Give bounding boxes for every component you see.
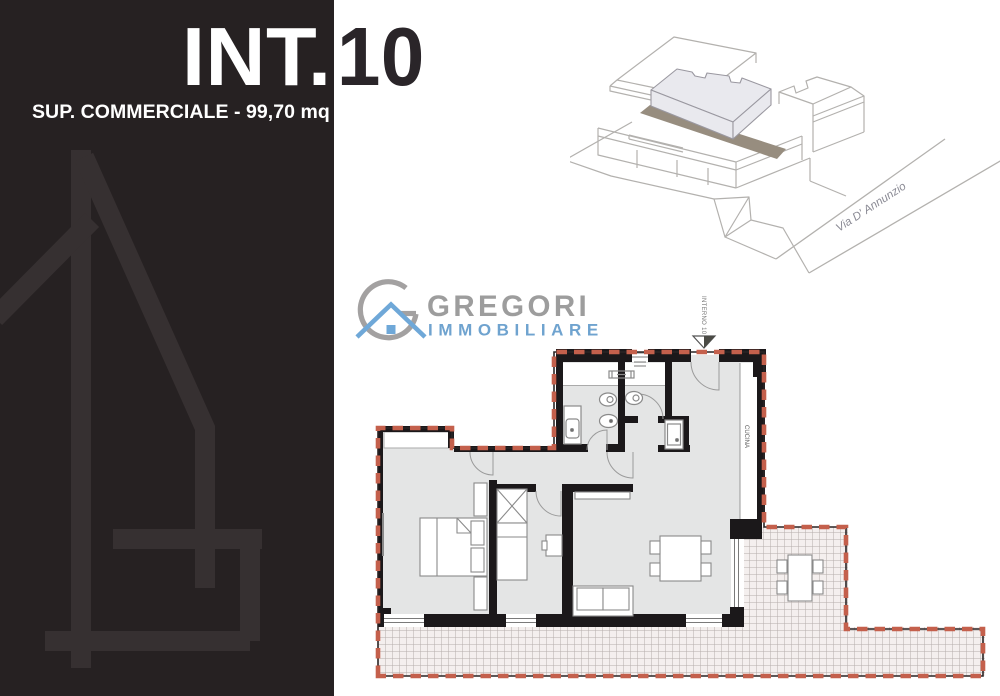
svg-text:CUCINA: CUCINA [743,425,749,448]
svg-text:INTERNO 10: INTERNO 10 [700,296,706,335]
